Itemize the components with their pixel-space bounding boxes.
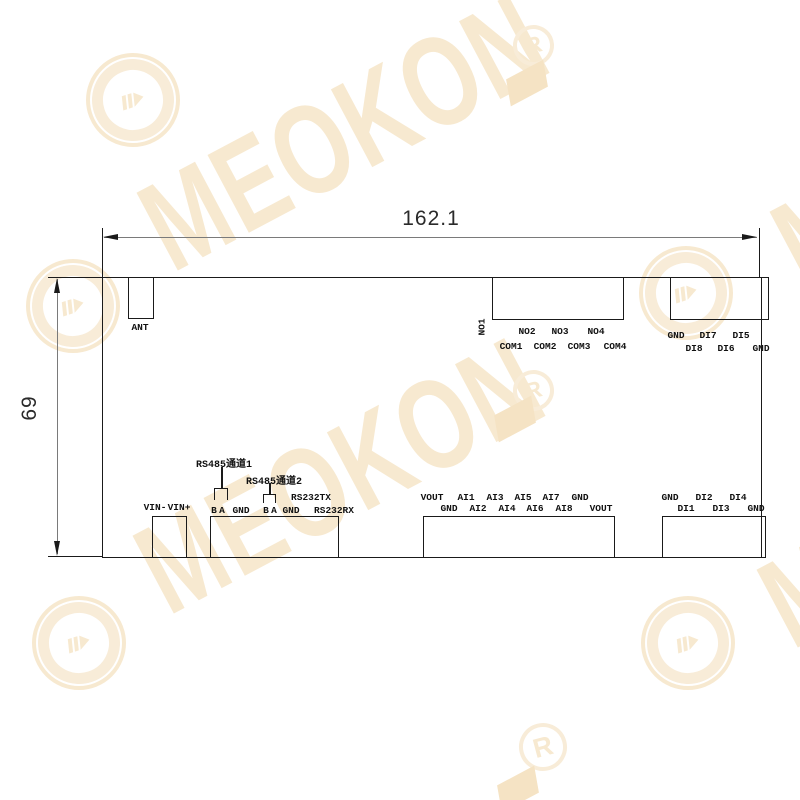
meokon-logo-icon: [641, 596, 735, 690]
digital-input-top-block: [670, 277, 769, 320]
ant-connector-block: [128, 277, 154, 319]
analog-pin-ai1: AI1: [457, 492, 474, 503]
meokon-logo-icon: [32, 596, 126, 690]
serial-pin-gnd1: GND: [232, 505, 249, 516]
relay-pin-com2: COM2: [534, 341, 557, 352]
extension-line-right: [759, 228, 760, 277]
di-bottom-pin-di3: DI3: [712, 503, 729, 514]
di-top-pin-gnd2: GND: [752, 343, 769, 354]
rs485-channel2-label: RS485通道2: [246, 472, 302, 488]
analog-pin-ai5: AI5: [514, 492, 531, 503]
channel1-fork: [214, 488, 228, 500]
relay-terminal-block: [492, 277, 624, 320]
analog-pin-vout2: VOUT: [590, 503, 613, 514]
brand-text-watermark-partial: MEOKON: [755, 0, 800, 311]
di-top-pin-di6: DI6: [717, 343, 734, 354]
brand-logo-watermark: [641, 596, 735, 690]
height-dimension-value: 69: [18, 395, 42, 420]
relay-pin-no1: NO1: [477, 318, 488, 335]
dimension-arrow-up-icon: [54, 278, 60, 293]
analog-pin-ai3: AI3: [486, 492, 503, 503]
serial-pin-a1: A: [219, 505, 225, 516]
power-pin-vin-minus: VIN-: [144, 502, 167, 513]
serial-pin-gnd2: GND: [282, 505, 299, 516]
analog-pin-ai8: AI8: [555, 503, 572, 514]
analog-pin-gnd2: GND: [440, 503, 457, 514]
di-bottom-pin-di4: DI4: [729, 492, 746, 503]
power-pin-vin-plus: VIN+: [168, 502, 191, 513]
relay-pin-no4: NO4: [587, 326, 604, 337]
dimension-arrow-right-icon: [742, 234, 757, 240]
rs485-channel1-label: RS485通道1: [196, 455, 252, 471]
channel2-fork: [263, 494, 276, 503]
watermark-swoosh: [497, 766, 539, 800]
di-bottom-pin-di1: DI1: [677, 503, 694, 514]
di-top-pin-gnd: GND: [667, 330, 684, 341]
brand-logo-watermark: [32, 596, 126, 690]
relay-pin-com4: COM4: [604, 341, 627, 352]
dimension-arrow-down-icon: [54, 541, 60, 556]
rs232tx-label: RS232TX: [291, 492, 331, 503]
di-top-pin-di8: DI8: [685, 343, 702, 354]
serial-pin-b1: B: [211, 505, 217, 516]
analog-pin-ai6: AI6: [526, 503, 543, 514]
power-terminal-block: [152, 516, 187, 558]
analog-pin-ai4: AI4: [498, 503, 515, 514]
relay-pin-no3: NO3: [551, 326, 568, 337]
relay-pin-com3: COM3: [568, 341, 591, 352]
di-top-pin-di5: DI5: [732, 330, 749, 341]
width-dimension-line: [104, 237, 757, 238]
analog-pin-ai2: AI2: [469, 503, 486, 514]
serial-pin-a2: A: [271, 505, 277, 516]
ant-label: ANT: [131, 322, 148, 333]
di-bottom-pin-gnd1: GND: [661, 492, 678, 503]
di-bottom-pin-di2: DI2: [695, 492, 712, 503]
width-dimension-value: 162.1: [402, 207, 460, 231]
registered-mark-icon: R: [514, 718, 573, 777]
serial-terminal-block: [210, 516, 339, 558]
relay-pin-no2: NO2: [518, 326, 535, 337]
serial-pin-b2: B: [263, 505, 269, 516]
meokon-logo-icon: [86, 53, 180, 147]
relay-pin-com1: COM1: [500, 341, 523, 352]
dimension-drawing-page: MEOKON MEOKON MEOKON MEOKON R R R 162.1 …: [0, 0, 800, 800]
analog-terminal-block: [423, 516, 615, 558]
analog-pin-ai7: AI7: [542, 492, 559, 503]
analog-pin-vout1: VOUT: [421, 492, 444, 503]
extension-line-bottom: [48, 556, 102, 557]
brand-text-watermark: MEOKON: [122, 0, 566, 292]
digital-input-bottom-block: [662, 516, 766, 558]
analog-pin-gnd1: GND: [571, 492, 588, 503]
di-top-pin-di7: DI7: [699, 330, 716, 341]
serial-pin-rs232rx: RS232RX: [314, 505, 354, 516]
dimension-arrow-left-icon: [103, 234, 118, 240]
di-bottom-pin-gnd2: GND: [747, 503, 764, 514]
brand-logo-watermark: [86, 53, 180, 147]
height-dimension-line: [57, 279, 58, 554]
